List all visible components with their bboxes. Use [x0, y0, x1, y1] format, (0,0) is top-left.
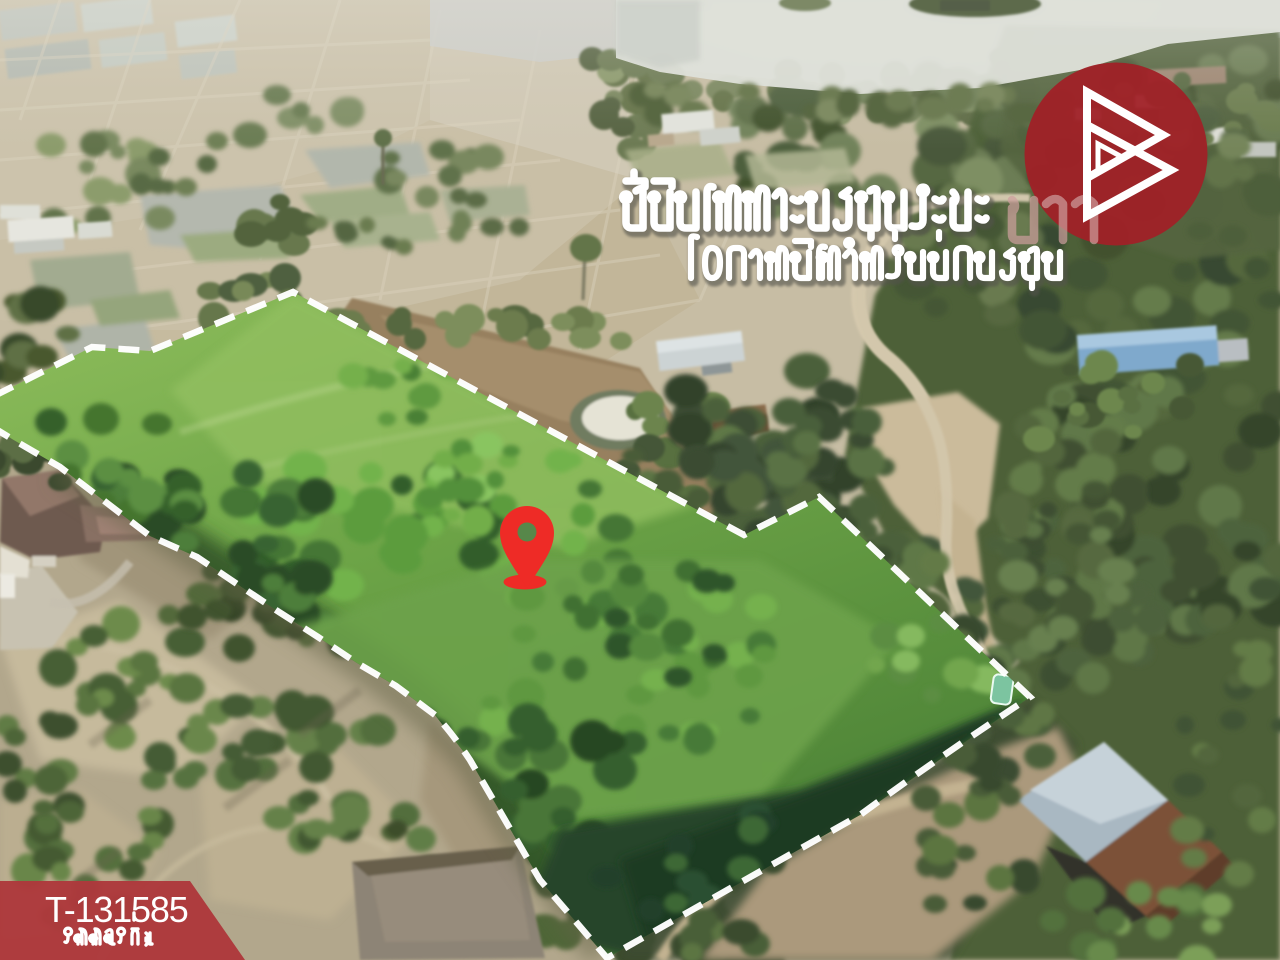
svg-text:T-131585: T-131585 [45, 889, 188, 930]
